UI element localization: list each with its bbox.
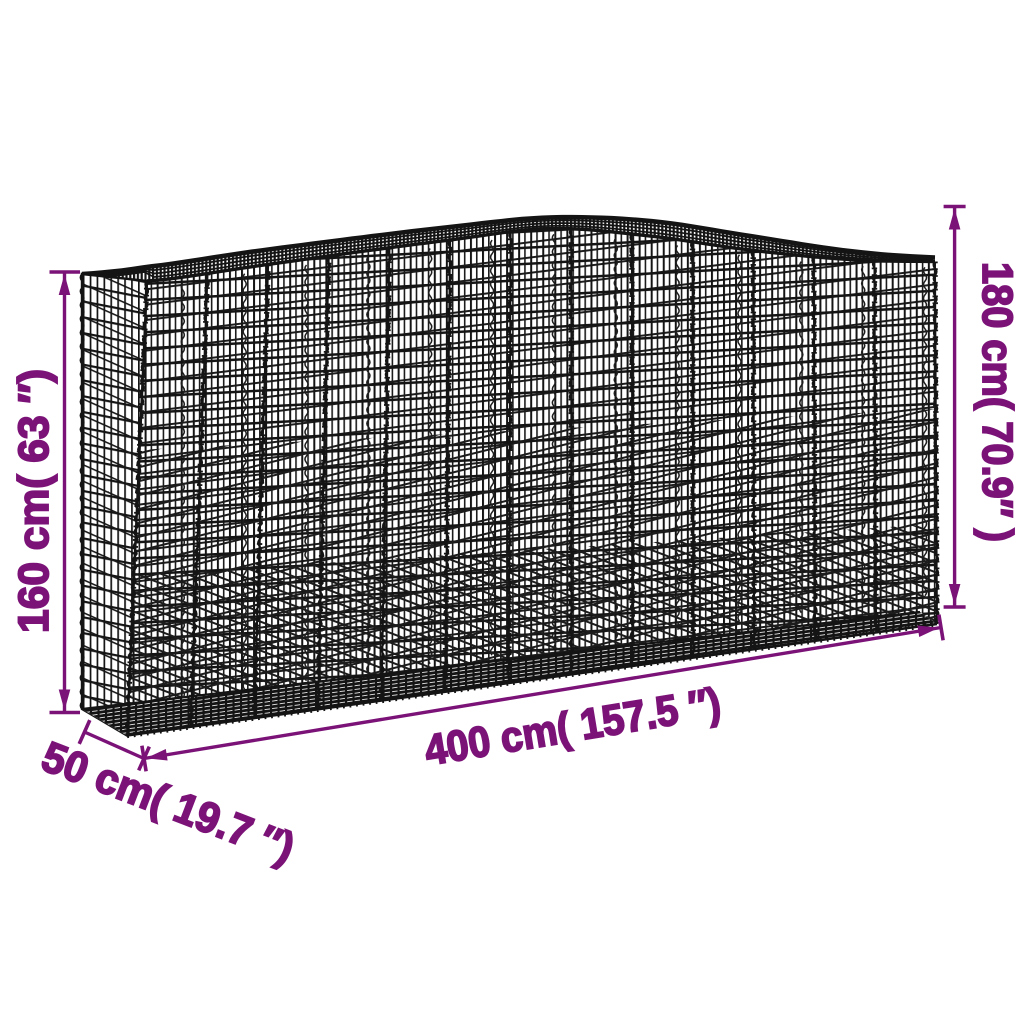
svg-text:400 cm( 157.5 ″): 400 cm( 157.5 ″): [421, 679, 724, 775]
svg-text:180 cm( 70.9″ ): 180 cm( 70.9″ ): [973, 262, 1021, 542]
svg-text:160 cm( 63 ″): 160 cm( 63 ″): [10, 369, 58, 633]
